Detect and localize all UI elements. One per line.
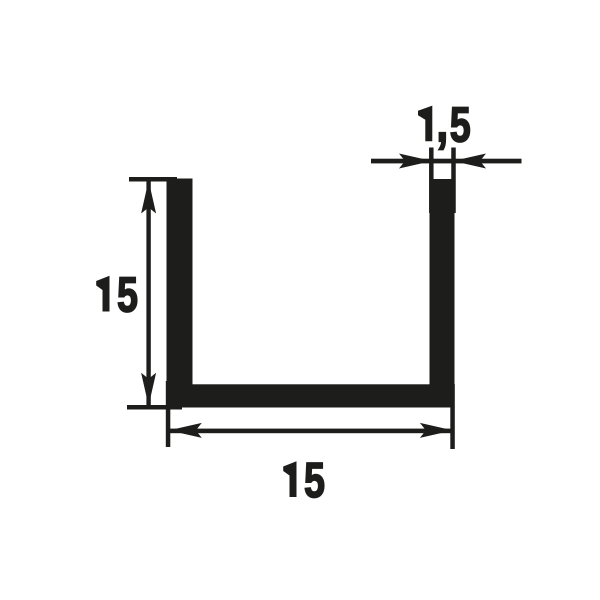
svg-text:5: 5 <box>304 453 325 508</box>
svg-text:,: , <box>437 93 449 154</box>
svg-text:5: 5 <box>117 268 138 323</box>
svg-text:5: 5 <box>450 98 471 153</box>
